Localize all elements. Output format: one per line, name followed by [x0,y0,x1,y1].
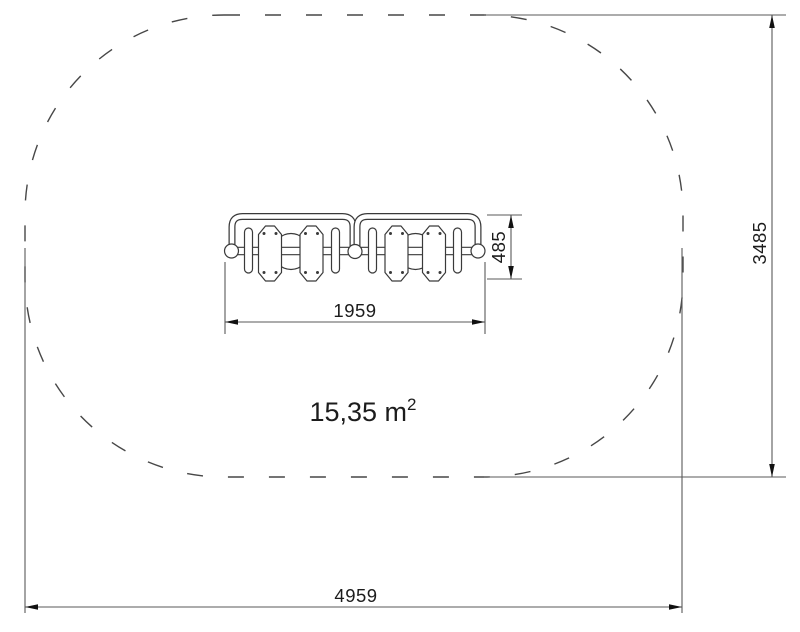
plan-drawing: 485 1959 3485 4959 15,35 m2 [0,0,800,632]
dimension-equipment-height: 485 [487,215,522,279]
handle-3 [369,228,377,273]
area-superscript: 2 [407,395,416,414]
arrow-down-icon [508,266,514,279]
dimension-zone-height: 3485 [484,15,786,477]
dim-label-485: 485 [488,231,509,263]
area-label: 15,35 m2 [309,395,416,427]
equipment-top-view [225,217,486,282]
end-ball-right [471,244,485,258]
handle-2 [332,228,340,273]
seat-1 [259,226,282,281]
arrow-left-icon [225,319,238,325]
seat-3 [385,226,408,281]
arrow-right-icon [472,319,485,325]
arrow-up-icon [769,15,775,28]
seat-2 [300,226,323,281]
dim-label-3485: 3485 [749,221,770,264]
area-value: 15,35 m [309,397,407,427]
center-ball [348,245,362,259]
arrow-up-icon [508,215,514,228]
end-ball-left [225,244,239,258]
handle-4 [454,228,462,273]
seat-4 [423,226,446,281]
dim-label-1959: 1959 [333,300,376,321]
arrow-down-icon [769,464,775,477]
arrow-left-icon [25,604,38,610]
drawing-canvas: 485 1959 3485 4959 15,35 m2 [0,0,800,632]
arrow-right-icon [669,604,682,610]
handle-1 [245,228,253,273]
dim-label-4959: 4959 [334,585,377,606]
